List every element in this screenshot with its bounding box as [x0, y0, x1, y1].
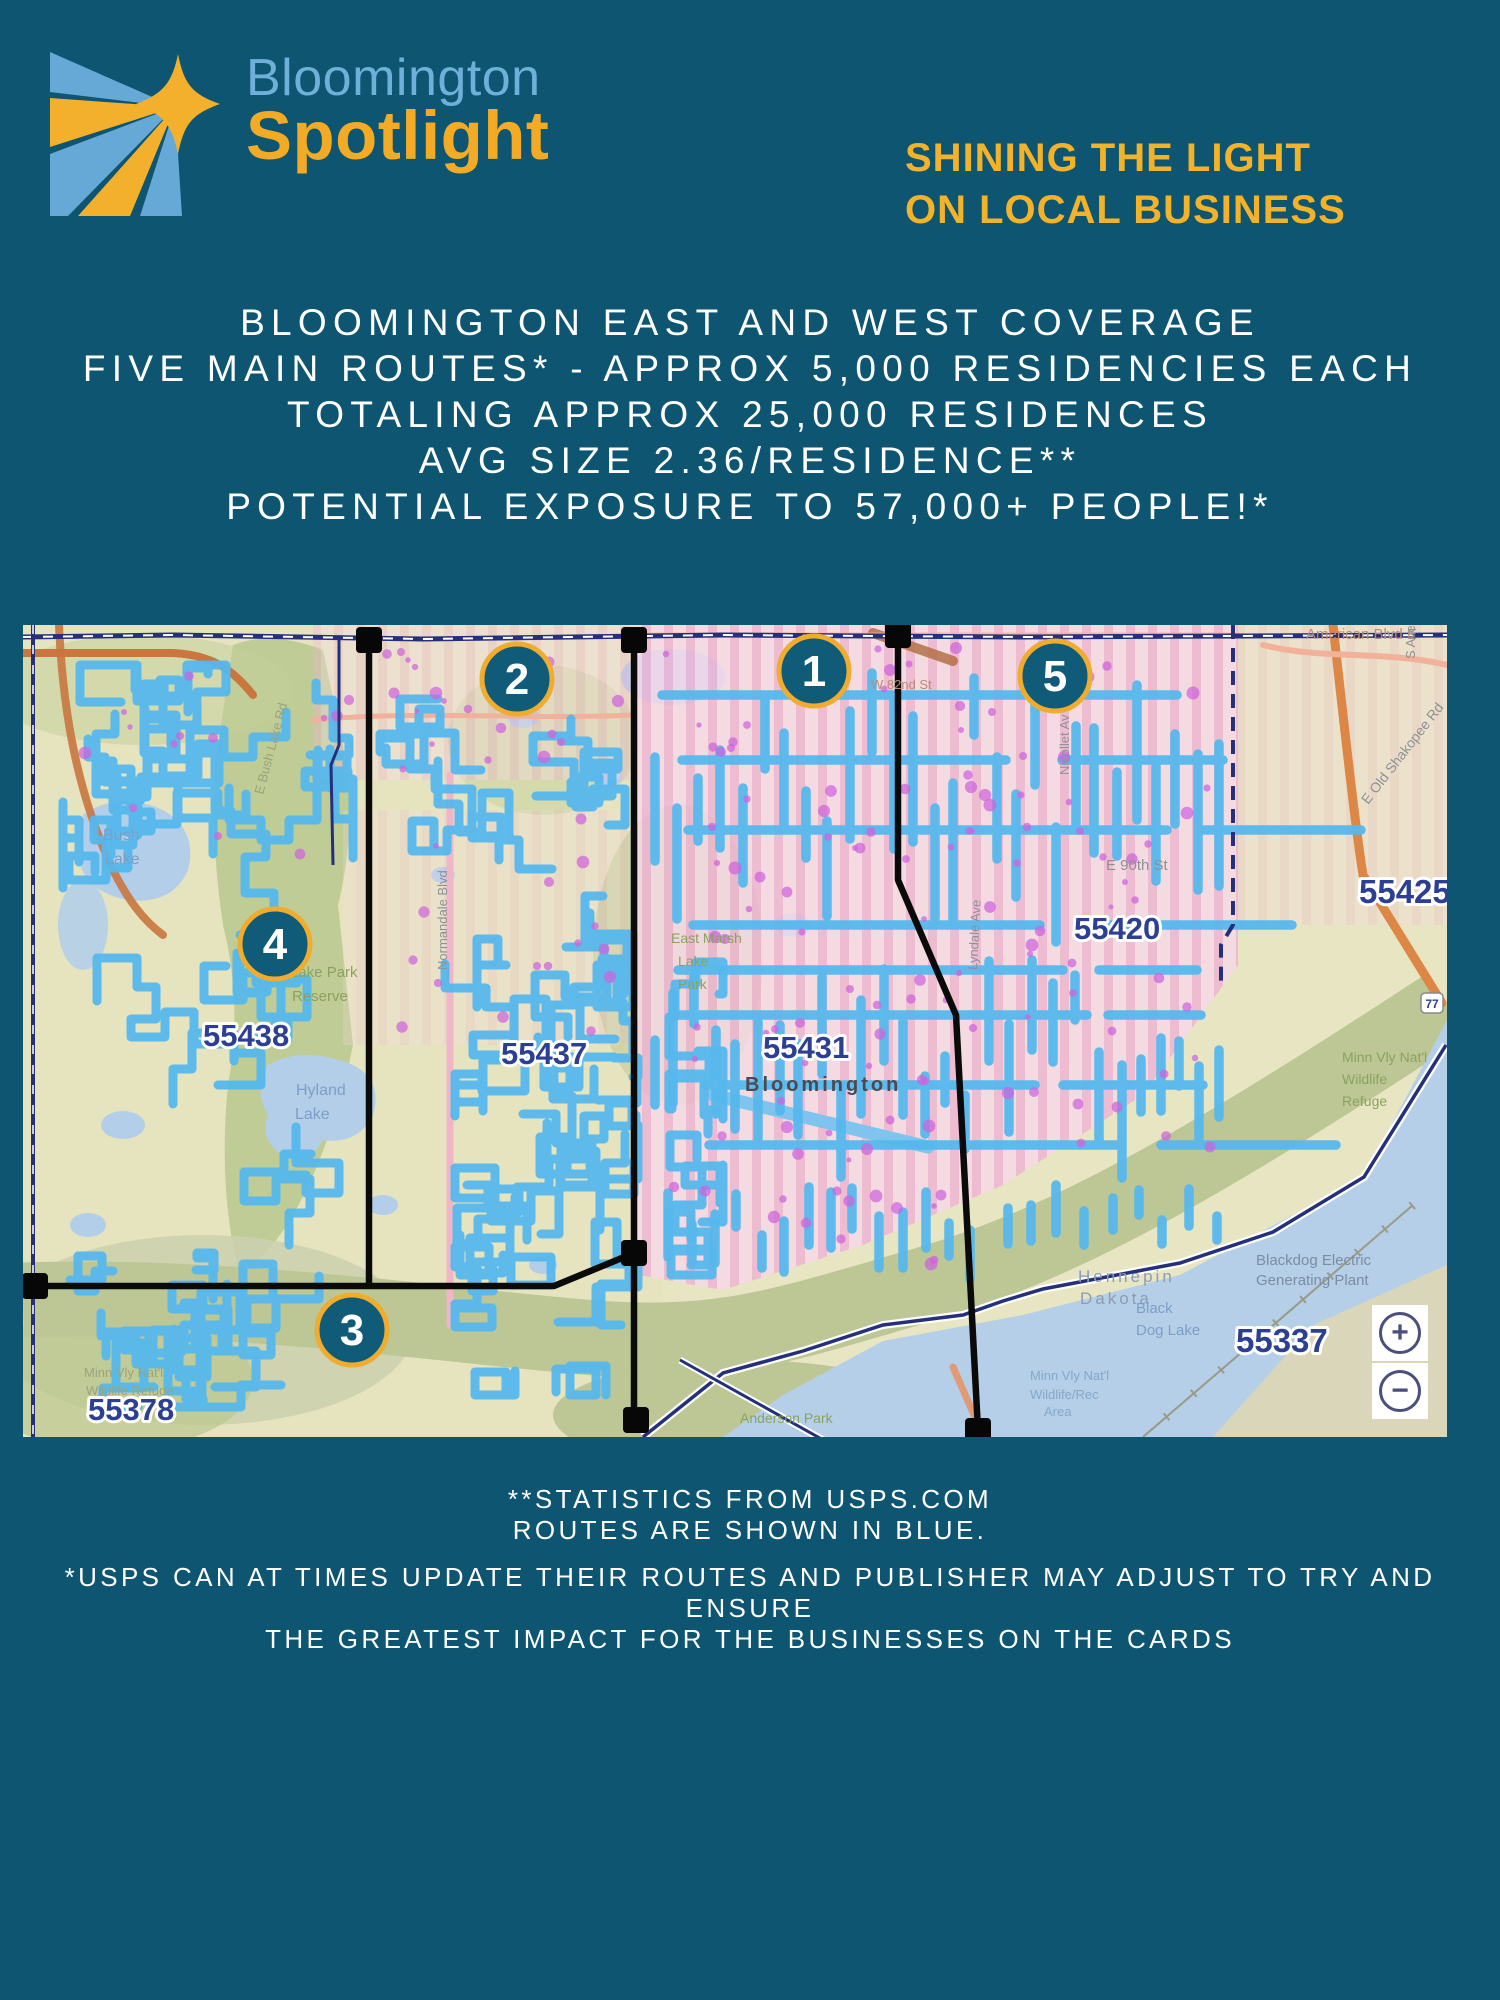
map-label: Lake: [295, 1106, 330, 1123]
map-label: Black: [1136, 1300, 1173, 1317]
bloomington-spotlight-logo-icon: [50, 52, 220, 216]
route-marker-3: 3: [317, 1295, 387, 1365]
route-marker-4: 4: [240, 909, 310, 979]
map-label: Anderson Park: [740, 1410, 834, 1426]
headline-line: FIVE MAIN ROUTES* - APPROX 5,000 RESIDEN…: [0, 346, 1500, 392]
map-label: Minn Vly Nat'l: [1342, 1049, 1427, 1065]
map-label: Normandale Blvd: [435, 870, 450, 970]
headline-line: POTENTIAL EXPOSURE TO 57,000+ PEOPLE!*: [0, 484, 1500, 530]
route-marker-5: 5: [1020, 641, 1090, 711]
route-marker-number: 3: [340, 1306, 364, 1355]
route-node-square: [356, 627, 382, 653]
footnote-line: THE GREATEST IMPACT FOR THE BUSINESSES O…: [0, 1624, 1500, 1655]
tagline-line2: ON LOCAL BUSINESS: [905, 184, 1465, 236]
route-marker-2: 2: [482, 644, 552, 714]
zip-code-label: 55437: [501, 1036, 587, 1071]
headline-block: BLOOMINGTON EAST AND WEST COVERAGE FIVE …: [0, 300, 1500, 530]
route-marker-number: 1: [802, 647, 826, 696]
route-node-square: [621, 627, 647, 653]
flyer-page: { "page": { "background_color": "#0d5570…: [0, 0, 1500, 2000]
map-label: S Ave: [1403, 625, 1418, 659]
map-label: Minn Vly Nat'l: [1030, 1368, 1109, 1383]
map-label: W 82nd St: [871, 677, 932, 692]
route-node-square: [623, 1407, 649, 1433]
highway-shield: 77: [1421, 993, 1443, 1013]
map-label: Minn Vly Nat'l: [84, 1365, 163, 1380]
route-marker-number: 2: [505, 655, 529, 704]
headline-line: TOTALING APPROX 25,000 RESIDENCES: [0, 392, 1500, 438]
map-label: E 90th St: [1106, 857, 1169, 874]
map-label: Blackdog Electric: [1256, 1252, 1372, 1269]
brand-name-bottom: Spotlight: [246, 96, 549, 175]
headline-line: BLOOMINGTON EAST AND WEST COVERAGE: [0, 300, 1500, 346]
headline-line: AVG SIZE 2.36/RESIDENCE**: [0, 438, 1500, 484]
map-label: Refuge: [1342, 1093, 1387, 1109]
map-label: Wildlife: [1342, 1071, 1387, 1087]
map-label: Area: [1044, 1404, 1072, 1419]
coverage-map: 77 BushLakeHylandLakeLake ParkReserveEas…: [23, 625, 1447, 1437]
zoom-in-button[interactable]: +: [1372, 1305, 1428, 1361]
zip-code-label: 55420: [1074, 911, 1160, 946]
route-node-square: [621, 1240, 647, 1266]
minus-icon: −: [1379, 1370, 1421, 1412]
map-label: Wildlife/Rec: [1030, 1387, 1099, 1402]
map-label: American Blvd E: [1306, 626, 1417, 643]
map-zoom-controls: + −: [1372, 1305, 1428, 1419]
map-label: Reserve: [292, 988, 348, 1005]
route-marker-number: 5: [1043, 652, 1067, 701]
zip-code-label: 55425: [1359, 873, 1447, 910]
highway-shield-number: 77: [1425, 997, 1439, 1011]
footnote-disclaimer: *USPS CAN AT TIMES UPDATE THEIR ROUTES A…: [0, 1562, 1500, 1655]
tagline: SHINING THE LIGHT ON LOCAL BUSINESS: [905, 132, 1465, 236]
zip-code-label: 55438: [203, 1018, 289, 1053]
route-node-square: [885, 625, 911, 648]
zip-code-label: 55378: [88, 1392, 174, 1427]
plus-icon: +: [1379, 1312, 1421, 1354]
footnote-line: *USPS CAN AT TIMES UPDATE THEIR ROUTES A…: [0, 1562, 1500, 1624]
zoom-out-button[interactable]: −: [1372, 1363, 1428, 1419]
map-label: Nicollet Av: [1057, 714, 1072, 775]
map-label: Generating Plant: [1256, 1272, 1369, 1289]
route-marker-number: 4: [263, 920, 288, 969]
map-label: Lake: [105, 851, 140, 868]
map-label: Dog Lake: [1136, 1322, 1200, 1339]
zip-code-label: 55337: [1236, 1322, 1328, 1359]
route-node-square: [965, 1418, 991, 1437]
map-label: Bush: [103, 827, 139, 844]
footnote-statistics: **STATISTICS FROM USPS.COM ROUTES ARE SH…: [0, 1484, 1500, 1546]
zip-code-label: 55431: [763, 1030, 849, 1065]
footnote-line: ROUTES ARE SHOWN IN BLUE.: [0, 1515, 1500, 1546]
footnote-line: **STATISTICS FROM USPS.COM: [0, 1484, 1500, 1515]
map-label: Lake: [678, 953, 709, 969]
map-label: Hennepin: [1078, 1267, 1175, 1286]
map-label: Park: [678, 976, 708, 992]
route-marker-1: 1: [779, 636, 849, 706]
tagline-line1: SHINING THE LIGHT: [905, 132, 1465, 184]
route-node-square: [23, 1273, 48, 1299]
map-label: Bloomington: [745, 1074, 901, 1096]
map-label: Hyland: [296, 1082, 346, 1099]
map-label: East Marsh: [671, 930, 742, 946]
